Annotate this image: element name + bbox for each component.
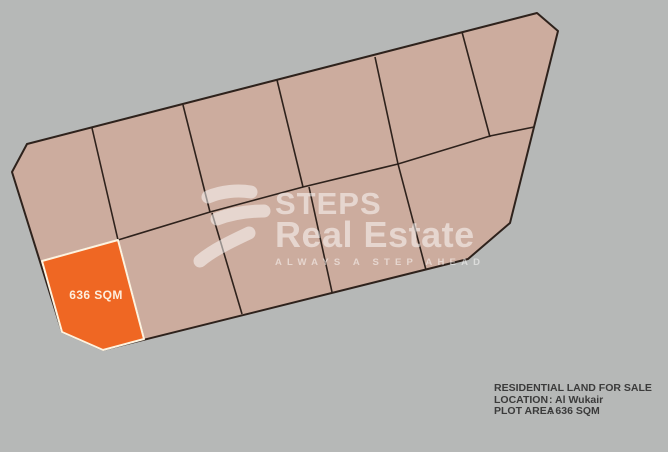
highlight-plot-label: 636 SQM (44, 288, 148, 302)
location-value: : Al Wukair (549, 394, 603, 406)
listing-area-row: PLOT AREA: 636 SQM (494, 406, 652, 418)
area-value: : 636 SQM (549, 405, 600, 417)
listing-info: RESIDENTIAL LAND FOR SALE LOCATION: Al W… (494, 383, 652, 418)
area-label: PLOT AREA (494, 406, 549, 418)
flyer-canvas: STEPS Real Estate ALWAYS A STEP AHEAD 63… (0, 0, 668, 452)
